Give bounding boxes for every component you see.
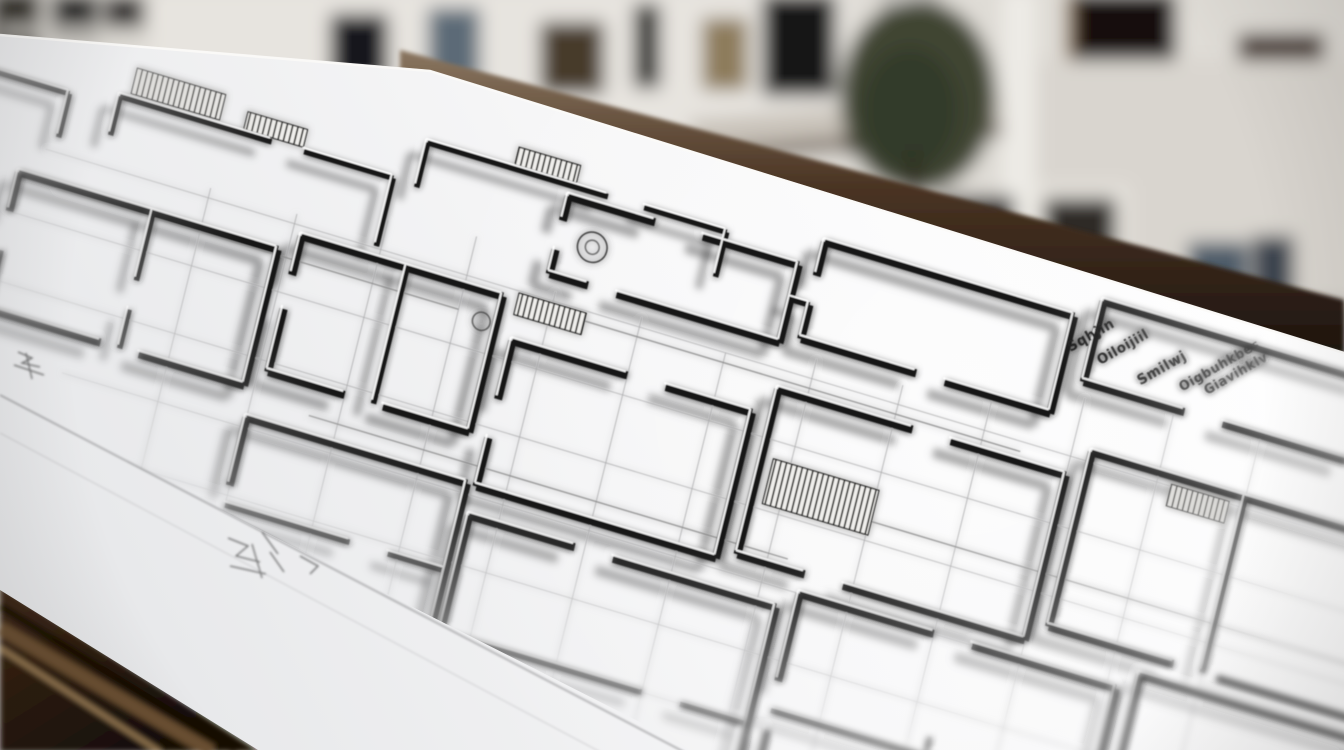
vignette-overlay — [0, 0, 1344, 750]
floorplan-photo: Sqhjin Oiloijiil Smilwj Oigbuhkbes Giavi… — [0, 0, 1344, 750]
